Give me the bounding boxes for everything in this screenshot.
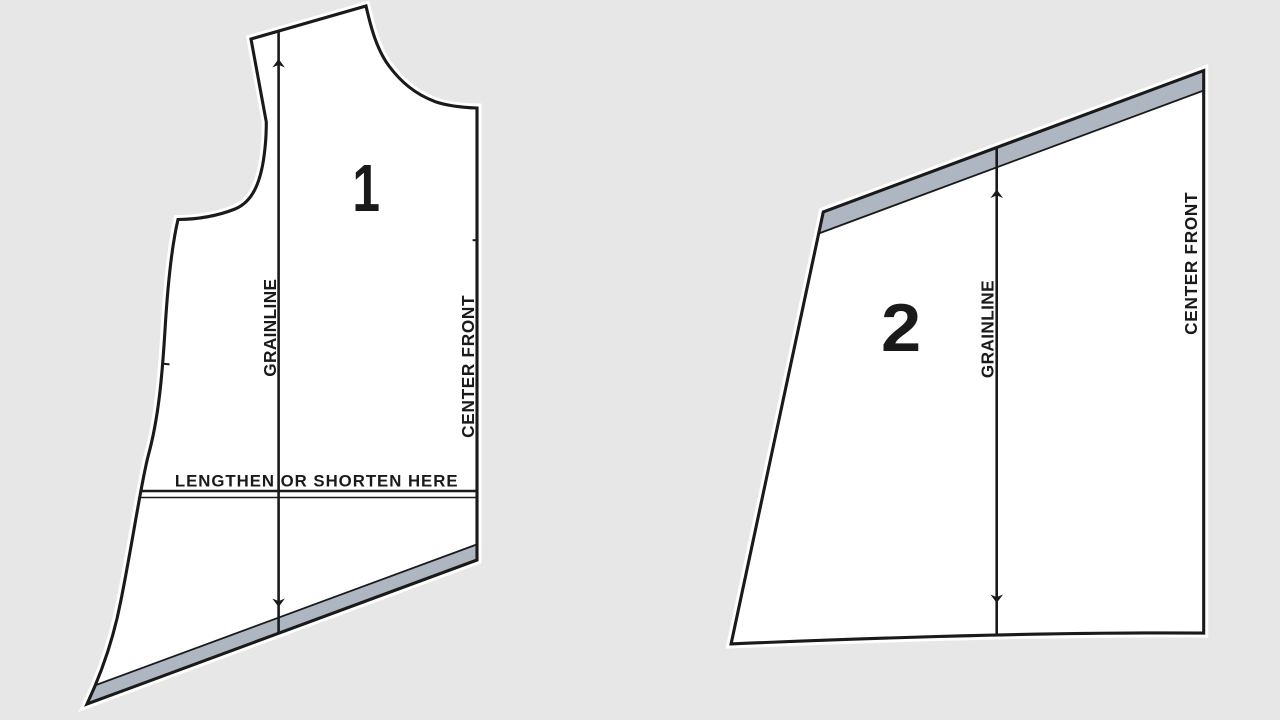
- svg-text:GRAINLINE: GRAINLINE: [260, 279, 280, 377]
- svg-text:CENTER FRONT: CENTER FRONT: [1181, 192, 1201, 335]
- svg-text:LENGTHEN OR SHORTEN HERE: LENGTHEN OR SHORTEN HERE: [175, 471, 459, 490]
- svg-text:CENTER FRONT: CENTER FRONT: [458, 295, 478, 438]
- svg-text:2: 2: [881, 290, 921, 365]
- svg-text:1: 1: [352, 152, 380, 226]
- svg-text:GRAINLINE: GRAINLINE: [978, 280, 998, 378]
